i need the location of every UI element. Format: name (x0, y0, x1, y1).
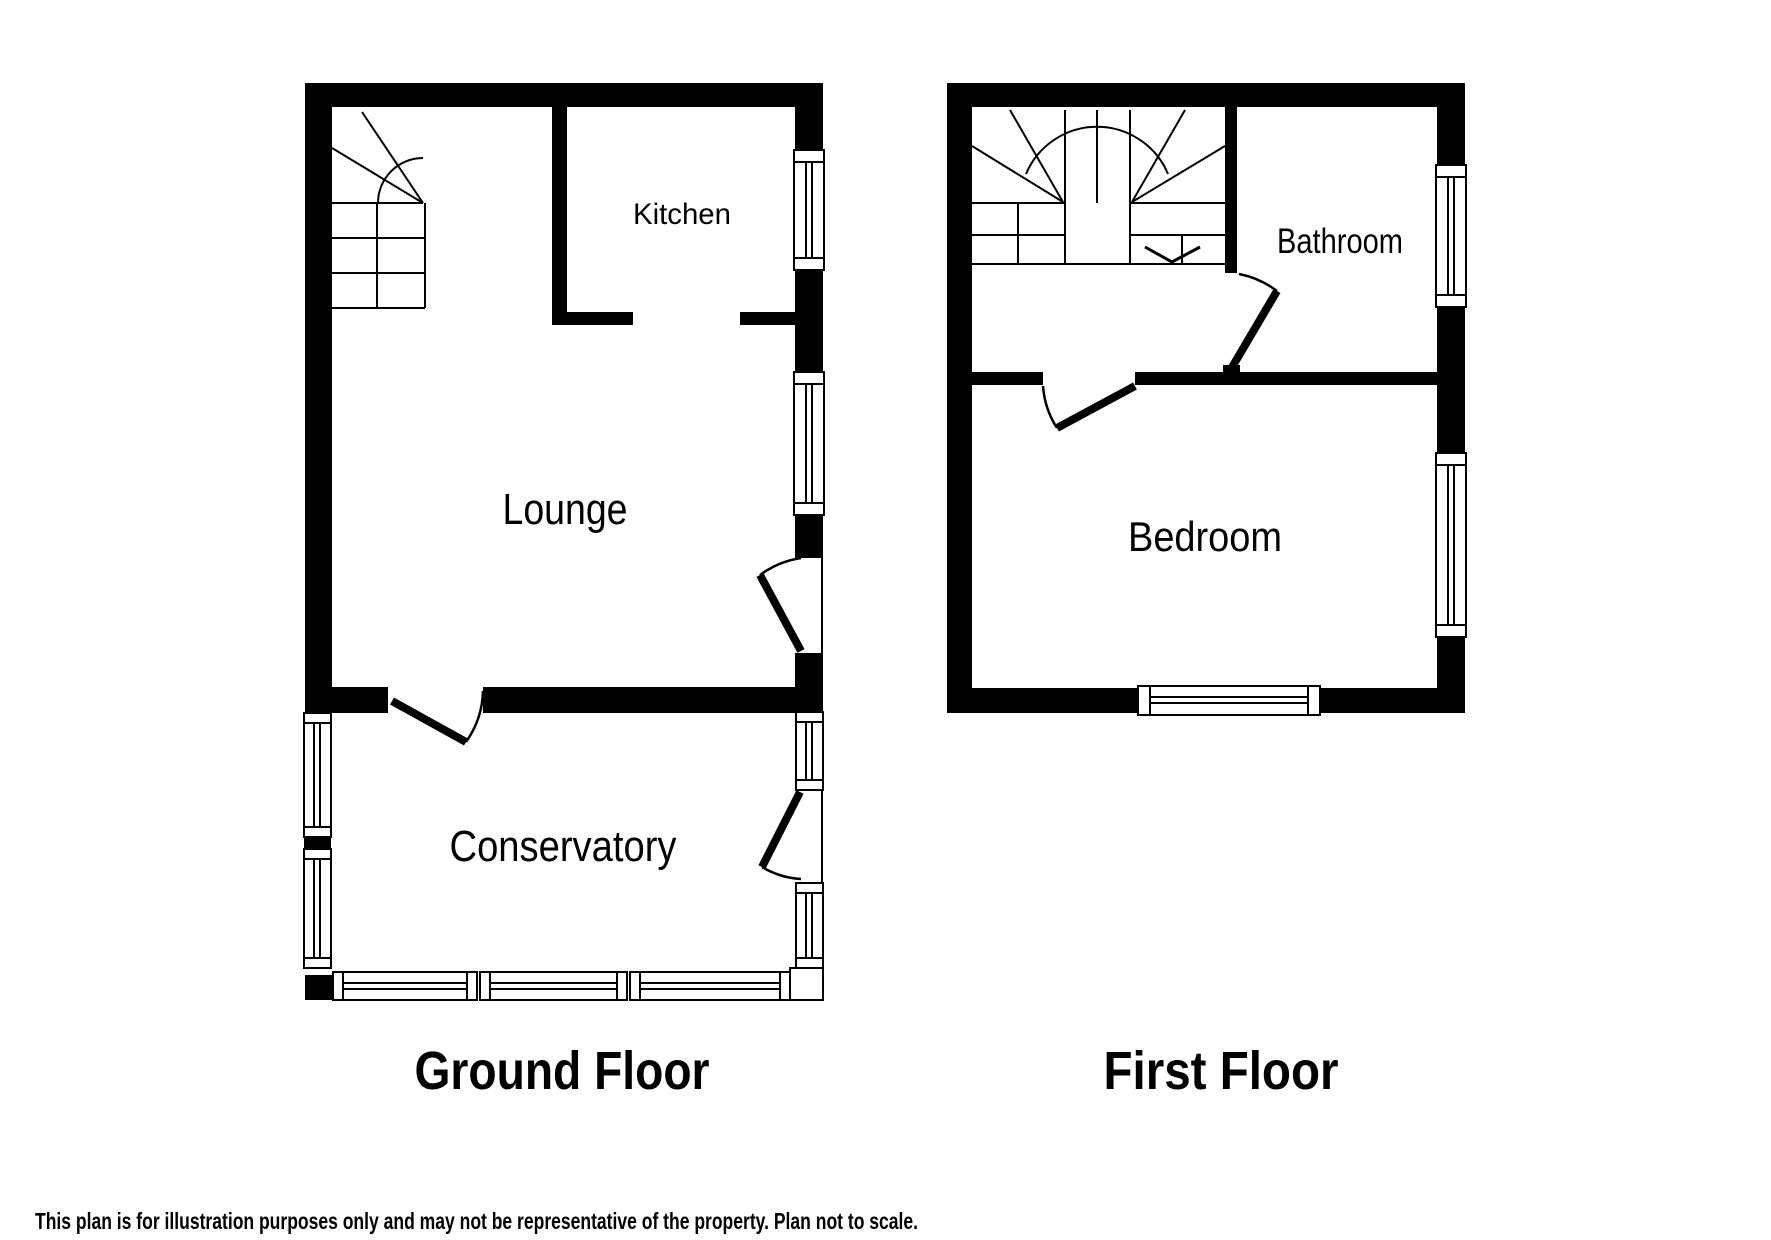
wall-bottom (1320, 688, 1465, 713)
bathroom-label: Bathroom (1277, 222, 1403, 261)
wall-kitchen-divider (552, 107, 567, 325)
wall-lounge-conservatory (305, 687, 388, 713)
wall-right-segment (795, 515, 823, 558)
conservatory-right-window-symbol (796, 712, 823, 968)
wall-window-mullion (304, 837, 331, 849)
disclaimer-text: This plan is for illustration purposes o… (35, 1208, 918, 1234)
wall-bedroom-divider (972, 372, 1043, 385)
first-floor-stairs-symbol (972, 110, 1225, 264)
wall-stairwell (1225, 107, 1237, 273)
wall-top (947, 83, 1465, 107)
wall-right-segment (795, 653, 823, 687)
wall-top (305, 83, 823, 107)
conservatory-corner-post (790, 968, 823, 1000)
wall-conservatory-corner (305, 975, 333, 1000)
ground-floor-plan: Kitchen Lounge Conservatory Ground Floor (304, 83, 824, 1101)
wall-lounge-conservatory (483, 687, 823, 713)
conservatory-label: Conservatory (450, 822, 677, 871)
bedroom-bottom-window-symbol (1138, 686, 1320, 715)
floorplan-drawing: Kitchen Lounge Conservatory Ground Floor (0, 0, 1771, 1240)
bedroom-window-symbol (1436, 453, 1466, 637)
wall-kitchen-bottom (552, 312, 633, 325)
lounge-door-symbol (760, 558, 822, 653)
lounge-window-symbol (794, 372, 824, 515)
wall-right-segment (1437, 307, 1465, 453)
bathroom-window-symbol (1436, 165, 1466, 307)
wall-bedroom-divider (1135, 372, 1437, 385)
first-floor-plan: Bathroom Bedroom First Floor (947, 83, 1466, 1101)
ground-floor-stairs-symbol (332, 112, 425, 308)
wall-bottom (947, 688, 1138, 713)
wall-right-segment (1437, 637, 1465, 688)
first-floor-title: First Floor (1104, 1041, 1339, 1101)
wall-left (947, 107, 972, 713)
wall-right-segment (795, 107, 823, 150)
conservatory-door-symbol (762, 790, 822, 883)
lounge-label: Lounge (503, 485, 628, 534)
conservatory-inner-door-symbol (392, 691, 483, 742)
bedroom-label: Bedroom (1128, 513, 1282, 560)
conservatory-bottom-window-symbol (333, 968, 823, 1000)
floorplan-page: Kitchen Lounge Conservatory Ground Floor (0, 0, 1771, 1240)
wall-right-segment (795, 270, 823, 372)
wall-right-segment (1437, 107, 1465, 165)
stairs-direction-arrow (1145, 247, 1200, 262)
wall-kitchen-bottom (740, 312, 795, 325)
ground-floor-title: Ground Floor (415, 1041, 710, 1101)
kitchen-window-symbol (794, 150, 824, 270)
bedroom-door-symbol (1043, 386, 1135, 428)
bathroom-door-symbol (1231, 274, 1277, 369)
kitchen-label: Kitchen (633, 198, 731, 231)
wall-left (305, 107, 332, 713)
